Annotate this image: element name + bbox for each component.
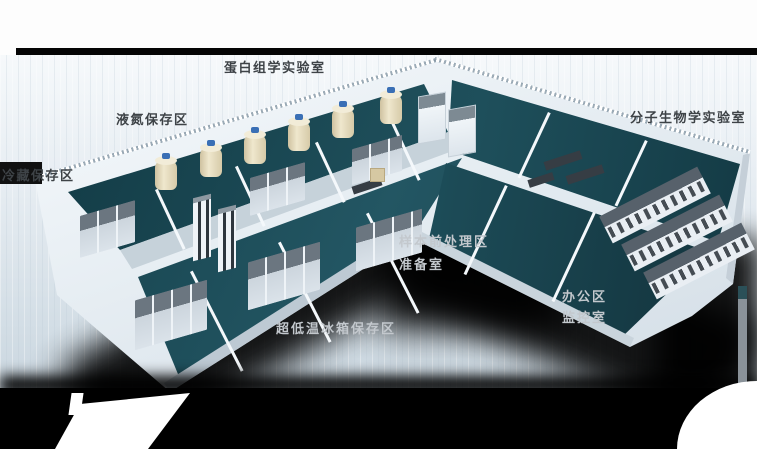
label-office-area: 办公区 [562,286,607,305]
label-preparation-room: 准备室 [399,254,444,273]
teal-chip [738,286,747,299]
label-molecular-biology-lab: 分子生物学实验室 [630,107,746,126]
label-proteomics-lab: 蛋白组学实验室 [224,57,326,76]
label-cold-storage-area: 冷藏保存区 [2,165,75,184]
label-ult-freezer-storage-area: 超低温冰箱保存区 [276,318,396,337]
label-monitoring-room: 监控室 [562,307,607,326]
label-sample-pretreatment-area: 样本前处理区 [399,231,489,250]
gray-strip [738,298,747,390]
label-liquid-nitrogen-area: 液氮保存区 [116,109,189,128]
lab-floorplan-scene: 蛋白组学实验室 液氮保存区 冷藏保存区 分子生物学实验室 样本前处理区 准备室 … [0,0,757,449]
